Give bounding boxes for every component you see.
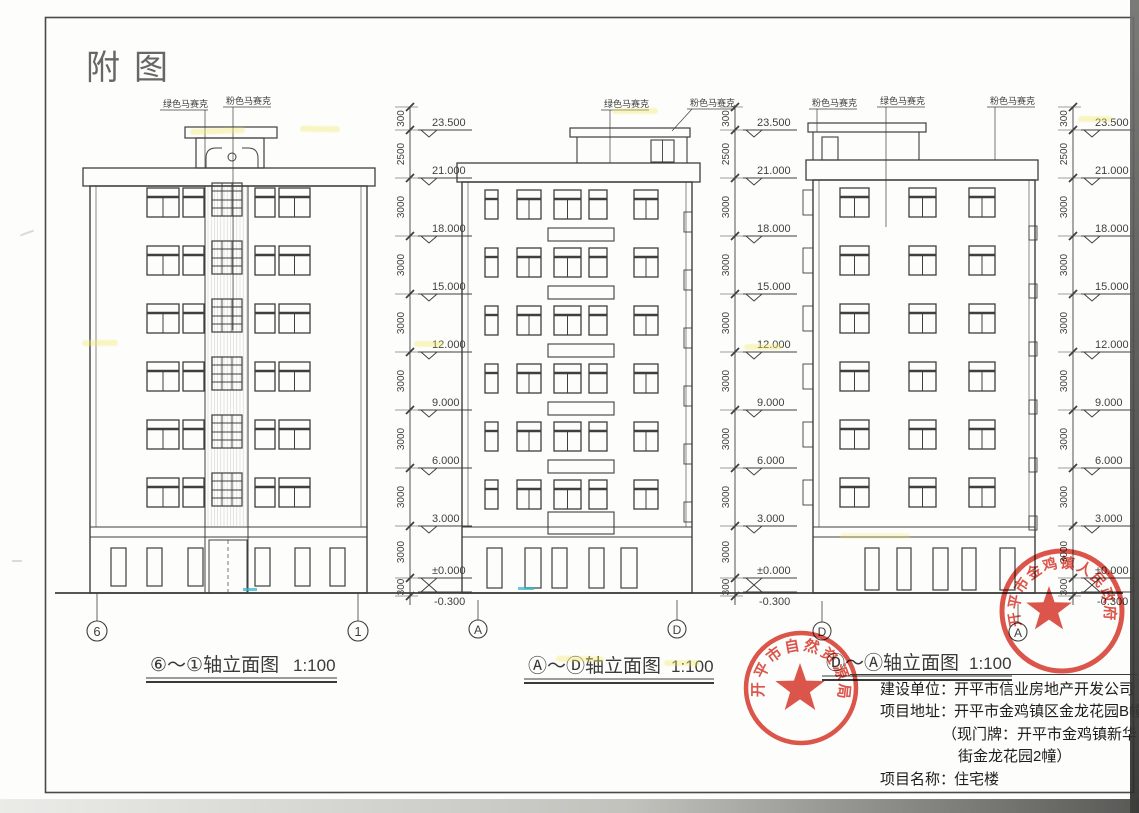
door-opening bbox=[188, 548, 203, 586]
window bbox=[183, 362, 204, 391]
segment-dimension: 300 bbox=[1059, 578, 1070, 595]
highlighter-mark bbox=[744, 344, 782, 350]
segment-dimension: 3000 bbox=[1059, 485, 1070, 508]
tower-arch bbox=[206, 148, 222, 168]
balcony-slab bbox=[548, 286, 614, 299]
elevation-label: 3.000 bbox=[757, 513, 785, 525]
window bbox=[589, 190, 607, 219]
balcony-slab bbox=[548, 460, 614, 473]
segment-dimension: 3000 bbox=[396, 311, 407, 334]
level-triangle bbox=[1084, 526, 1100, 533]
info-value: （现门牌：开平市金鸡镇新华 bbox=[880, 724, 1137, 746]
side-window bbox=[684, 444, 692, 464]
balcony-slab bbox=[548, 402, 614, 415]
mosaic-label: 粉色马赛克 bbox=[690, 97, 735, 108]
elevation-label: 18.000 bbox=[757, 223, 791, 235]
balcony-slab bbox=[548, 344, 614, 357]
elevation-label: 18.000 bbox=[432, 223, 466, 235]
level-triangle bbox=[1084, 130, 1100, 137]
elevation-label: 21.000 bbox=[432, 165, 466, 177]
segment-dimension: 3000 bbox=[396, 195, 407, 218]
stamp-town-government: 开平市金鸡镇人民政府 bbox=[1002, 551, 1122, 671]
segment-dimension: 300 bbox=[721, 578, 732, 595]
building-elevation-d-to-a bbox=[803, 123, 1038, 593]
project-info-row: 建设单位： 开平市信业房地产开发公司 bbox=[880, 679, 1137, 701]
mosaic-label: 粉色马赛克 bbox=[226, 95, 271, 106]
level-triangle bbox=[421, 585, 437, 592]
roof-slab bbox=[808, 123, 926, 132]
project-info-row: 项目地址： 开平市金鸡镇区金龙花园B幢 bbox=[880, 701, 1137, 723]
side-window bbox=[684, 212, 692, 232]
level-triangle bbox=[1084, 294, 1100, 301]
window bbox=[485, 190, 498, 219]
stair-window bbox=[212, 415, 242, 448]
info-label: 项目地址： bbox=[880, 701, 954, 723]
segment-dimension: 3000 bbox=[1059, 195, 1070, 218]
window bbox=[183, 246, 204, 275]
mosaic-label: 粉色马赛克 bbox=[990, 95, 1035, 106]
door-opening bbox=[487, 548, 502, 588]
info-value: 开平市金鸡镇区金龙花园B幢 bbox=[954, 701, 1139, 723]
segment-dimension: 300 bbox=[396, 110, 407, 127]
side-slab bbox=[1029, 400, 1037, 414]
segment-dimension: 2500 bbox=[1059, 142, 1070, 165]
elevation-label: 12.000 bbox=[1095, 339, 1129, 351]
axis-label: A bbox=[474, 623, 482, 637]
door-opening bbox=[147, 548, 162, 586]
segment-dimension: 3000 bbox=[396, 253, 407, 276]
stamp-star-icon bbox=[775, 663, 824, 710]
segment-dimension: 3000 bbox=[396, 369, 407, 392]
cornice bbox=[806, 160, 1038, 180]
level-triangle bbox=[421, 578, 437, 585]
segment-dimension: 3000 bbox=[396, 540, 407, 563]
highlighter-mark bbox=[300, 126, 340, 133]
side-slab bbox=[1029, 284, 1037, 298]
segment-dimension: 3000 bbox=[396, 485, 407, 508]
view-title: ⑥～①轴立面图 bbox=[150, 654, 279, 676]
elevation-label: 6.000 bbox=[1095, 455, 1123, 467]
segment-dimension: 300 bbox=[396, 578, 407, 595]
info-label: 项目名称： bbox=[880, 769, 954, 791]
window bbox=[183, 420, 204, 449]
side-slab bbox=[1029, 458, 1037, 472]
elevation-label: -0.300 bbox=[434, 596, 465, 608]
level-triangle bbox=[421, 410, 437, 417]
scan-edge-bottom bbox=[0, 799, 1139, 813]
window bbox=[485, 306, 498, 335]
elevation-label: 9.000 bbox=[757, 397, 785, 409]
highlighter-mark bbox=[556, 656, 604, 663]
highlighter-mark bbox=[840, 533, 910, 539]
elevation-label: 9.000 bbox=[432, 397, 460, 409]
segment-dimension: 3000 bbox=[721, 540, 732, 563]
level-triangle bbox=[421, 468, 437, 475]
project-info-row: 项目名称： 住宅楼 bbox=[880, 769, 1137, 791]
highlighter-mark bbox=[414, 341, 444, 347]
pen-mark bbox=[243, 588, 257, 591]
side-window bbox=[803, 364, 813, 389]
cornice bbox=[457, 163, 700, 182]
door-opening bbox=[111, 548, 126, 586]
level-triangle bbox=[746, 352, 762, 359]
view-scale: 1:100 bbox=[293, 656, 336, 675]
facade bbox=[813, 180, 1035, 593]
axis-label: 6 bbox=[93, 624, 100, 639]
stair-window bbox=[212, 183, 242, 216]
window bbox=[589, 306, 607, 335]
project-info-row: 街金龙花园2幢） bbox=[880, 746, 1137, 768]
info-value: 街金龙花园2幢） bbox=[880, 746, 1071, 768]
level-triangle bbox=[1084, 468, 1100, 475]
scan-edge-right bbox=[1130, 0, 1139, 813]
elevation-label: 6.000 bbox=[757, 455, 785, 467]
segment-dimension: 3000 bbox=[721, 311, 732, 334]
stamp-natural-resources-bureau: 开平市自然资源局 bbox=[746, 633, 856, 743]
segment-dimension: 300 bbox=[721, 110, 732, 127]
view-scale: 1:100 bbox=[969, 654, 1012, 673]
elevation-label: 23.500 bbox=[432, 117, 466, 129]
level-triangle bbox=[746, 178, 762, 185]
level-triangle bbox=[421, 178, 437, 185]
segment-dimension: 3000 bbox=[721, 195, 732, 218]
level-triangle bbox=[746, 236, 762, 243]
tower-circle-detail bbox=[228, 153, 236, 161]
window bbox=[183, 478, 204, 507]
balcony-slab bbox=[548, 512, 614, 534]
elevation-label: 15.000 bbox=[432, 281, 466, 293]
level-triangle bbox=[1084, 410, 1100, 417]
mosaic-finish-labels: 绿色马赛克 粉色马赛克 绿色马赛克 粉色马赛克 粉色马赛克 绿色马赛克 粉色马赛… bbox=[160, 95, 1035, 330]
side-window bbox=[803, 422, 813, 447]
axis-label: A bbox=[1014, 626, 1022, 640]
elevation-label: ±0.000 bbox=[757, 565, 791, 577]
segment-dimension: 3000 bbox=[1059, 311, 1070, 334]
mosaic-label: 绿色马赛克 bbox=[163, 98, 208, 109]
sheet-title: 附图 bbox=[86, 40, 182, 89]
level-triangle bbox=[1084, 236, 1100, 243]
door-opening bbox=[525, 548, 541, 588]
highlighter-mark bbox=[664, 660, 700, 666]
level-triangle bbox=[421, 130, 437, 137]
scan-stray-mark bbox=[12, 560, 22, 562]
segment-dimension: 3000 bbox=[396, 427, 407, 450]
elevation-label: 23.500 bbox=[757, 117, 791, 129]
door-opening bbox=[330, 548, 345, 586]
elevation-label: 6.000 bbox=[432, 455, 460, 467]
level-triangle bbox=[421, 526, 437, 533]
highlighter-mark bbox=[612, 108, 658, 114]
side-window bbox=[684, 270, 692, 290]
info-value: 开平市信业房地产开发公司 bbox=[954, 679, 1134, 701]
building-elevation-6-to-1 bbox=[83, 127, 375, 593]
stair-window bbox=[212, 299, 242, 332]
window bbox=[589, 422, 607, 451]
door-opening bbox=[933, 548, 948, 590]
window bbox=[255, 420, 275, 449]
project-info-rows: 建设单位： 开平市信业房地产开发公司 项目地址： 开平市金鸡镇区金龙花园B幢 （… bbox=[850, 679, 1137, 791]
stair-window bbox=[212, 357, 242, 390]
segment-dimension: 2500 bbox=[721, 142, 732, 165]
info-label: 建设单位： bbox=[880, 679, 954, 701]
dimension-columns: 23.50021.00018.00015.00012.0009.0006.000… bbox=[395, 103, 1135, 608]
project-info-block: 建设单位： 开平市信业房地产开发公司 项目地址： 开平市金鸡镇区金龙花园B幢 （… bbox=[850, 674, 1137, 791]
elevation-label: 3.000 bbox=[432, 513, 460, 525]
level-triangle bbox=[746, 410, 762, 417]
window bbox=[589, 364, 607, 393]
door-opening bbox=[962, 548, 976, 590]
side-slab bbox=[1029, 342, 1037, 356]
roof-slab bbox=[570, 128, 690, 137]
elevation-label: 15.000 bbox=[1095, 281, 1129, 293]
window bbox=[255, 188, 275, 217]
pen-mark bbox=[518, 587, 534, 590]
elevation-label: -0.300 bbox=[759, 596, 790, 608]
elevation-label: 15.000 bbox=[757, 281, 791, 293]
window bbox=[485, 422, 498, 451]
side-window bbox=[803, 248, 813, 273]
segment-dimension: 3000 bbox=[721, 253, 732, 276]
elevation-label: 3.000 bbox=[1095, 513, 1123, 525]
stair-window bbox=[212, 473, 242, 506]
window bbox=[589, 480, 607, 509]
balcony-slab bbox=[548, 228, 614, 241]
mosaic-label: 粉色马赛克 bbox=[812, 97, 857, 108]
side-slab bbox=[1029, 226, 1037, 240]
elevation-label: 21.000 bbox=[757, 165, 791, 177]
level-triangle bbox=[746, 526, 762, 533]
elevation-label: ±0.000 bbox=[432, 565, 466, 577]
axis-bubbles: 6 1 A D D A bbox=[87, 593, 1027, 641]
elevation-label: 9.000 bbox=[1095, 397, 1123, 409]
level-triangle bbox=[746, 578, 762, 585]
side-window bbox=[684, 328, 692, 348]
window bbox=[255, 362, 275, 391]
window bbox=[255, 478, 275, 507]
highlighter-mark bbox=[82, 340, 118, 347]
door-opening bbox=[897, 548, 911, 590]
segment-dimension: 2500 bbox=[396, 142, 407, 165]
stair-window bbox=[212, 241, 242, 274]
axis-label: 1 bbox=[354, 624, 361, 639]
level-triangle bbox=[1084, 178, 1100, 185]
side-slab bbox=[1029, 516, 1037, 530]
tower-arch bbox=[242, 148, 258, 168]
mosaic-label: 绿色马赛克 bbox=[880, 95, 925, 106]
side-window bbox=[803, 480, 813, 505]
info-value: 住宅楼 bbox=[954, 769, 999, 791]
segment-dimension: 3000 bbox=[721, 369, 732, 392]
segment-dimension: 3000 bbox=[1059, 427, 1070, 450]
highlighter-mark bbox=[1078, 116, 1112, 122]
window bbox=[485, 480, 498, 509]
segment-dimension: 300 bbox=[1059, 110, 1070, 127]
window bbox=[255, 304, 275, 333]
axis-label: D bbox=[673, 623, 682, 637]
project-info-row: （现门牌：开平市金鸡镇新华 bbox=[880, 724, 1137, 746]
side-window bbox=[803, 190, 813, 215]
window bbox=[589, 248, 607, 277]
window bbox=[183, 304, 204, 333]
side-window bbox=[684, 386, 692, 406]
window bbox=[183, 188, 204, 217]
door-opening bbox=[295, 548, 310, 586]
segment-dimension: 3000 bbox=[721, 485, 732, 508]
building-elevation-a-to-d bbox=[457, 128, 700, 593]
door-opening bbox=[552, 548, 567, 588]
side-window bbox=[684, 502, 692, 522]
level-triangle bbox=[746, 294, 762, 301]
level-triangle bbox=[746, 585, 762, 592]
level-triangle bbox=[746, 130, 762, 137]
door-opening bbox=[865, 548, 879, 590]
elevation-label: 18.000 bbox=[1095, 223, 1129, 235]
level-triangle bbox=[421, 352, 437, 359]
door-opening bbox=[589, 548, 604, 588]
segment-dimension: 3000 bbox=[1059, 253, 1070, 276]
level-triangle bbox=[421, 236, 437, 243]
level-triangle bbox=[421, 294, 437, 301]
window bbox=[485, 364, 498, 393]
level-triangle bbox=[1084, 352, 1100, 359]
segment-dimension: 3000 bbox=[721, 427, 732, 450]
penthouse-door bbox=[822, 137, 838, 160]
door-opening bbox=[621, 548, 637, 588]
window bbox=[255, 246, 275, 275]
segment-dimension: 3000 bbox=[1059, 369, 1070, 392]
window bbox=[485, 248, 498, 277]
side-window bbox=[803, 306, 813, 331]
elevation-label: 21.000 bbox=[1095, 165, 1129, 177]
level-triangle bbox=[746, 468, 762, 475]
door-opening bbox=[255, 548, 270, 586]
